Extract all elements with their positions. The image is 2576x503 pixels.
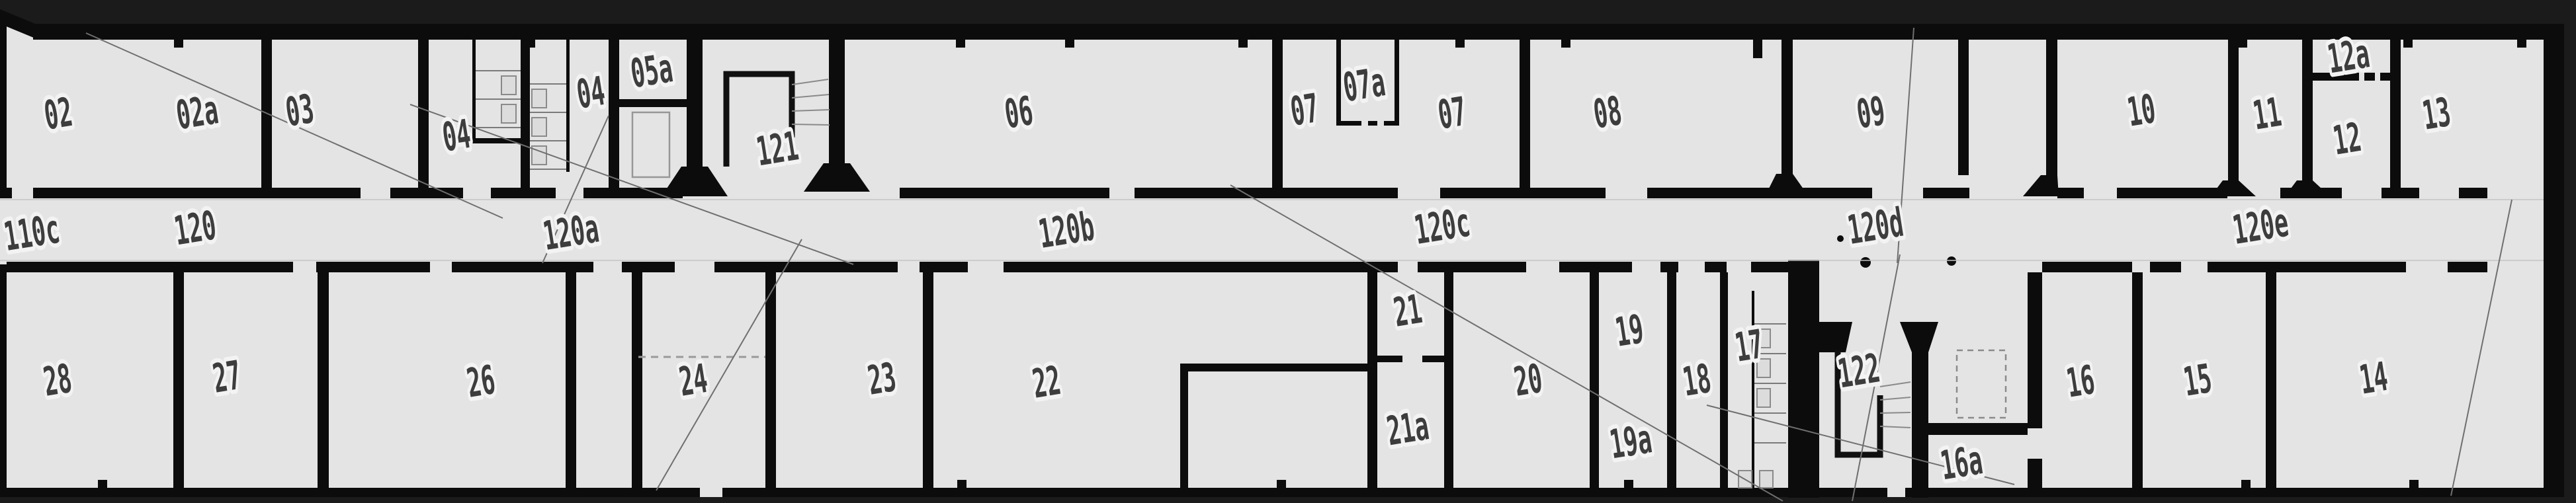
wall-21-20 [1444, 272, 1453, 488]
corridor-label-120a-20: 120a [540, 204, 602, 259]
room-label-21a-32: 21a [1383, 402, 1432, 455]
column [1837, 235, 1844, 242]
wall-07-08 [1520, 24, 1530, 188]
wall-26-25 [566, 272, 576, 488]
column [1860, 257, 1871, 268]
wall-07a-right [1395, 40, 1399, 126]
corridor-label-120d-23: 120d [1844, 198, 1907, 253]
wall-09-alcove [1958, 24, 1969, 175]
room-label-02a-1: 02a [173, 86, 221, 139]
stairwell-label-121-6: 121 [753, 122, 801, 175]
room-label-16a-39: 16a [1937, 436, 1985, 489]
corridor-label-110c-18: 110c [1, 205, 63, 260]
wall-08-09 [1782, 24, 1793, 174]
wall-11-12 [2302, 24, 2313, 180]
wall-below-05a [609, 99, 688, 107]
wall-17-122 [1788, 260, 1819, 498]
wall-24-23 [765, 272, 776, 488]
wall-27-26 [318, 272, 329, 488]
wall-121-06 [829, 24, 845, 163]
wall-10-11 [2228, 24, 2239, 180]
exterior-wall-right [2544, 24, 2564, 497]
wall-20-19 [1590, 272, 1599, 488]
corridor-label-120e-24: 120e [2229, 198, 2292, 253]
wall-07a-left [1336, 40, 1341, 126]
wall-alcove-10 [2046, 24, 2057, 175]
room-label-05a-5: 05a [627, 44, 675, 97]
column [1947, 256, 1956, 266]
wall-23-22 [923, 272, 933, 488]
wall-22-subroom [1180, 368, 1188, 488]
wall-above-16a [1928, 423, 2028, 435]
wall-lift-16 [2028, 272, 2042, 428]
wall-05a-121 [687, 24, 703, 167]
room-label-07a-9: 07a [1340, 58, 1388, 111]
corridor-label-120c-22: 120c [1411, 198, 1473, 253]
wall-21-21a [1377, 356, 1402, 362]
wall-06-07 [1272, 24, 1283, 188]
stairwell-label-122-38: 122 [1834, 344, 1883, 397]
wall-12-13 [2390, 24, 2401, 188]
corridor-label-120-19: 120 [171, 202, 219, 254]
exterior-wall-bottom [0, 488, 700, 497]
wall-19-18 [1667, 272, 1676, 488]
wall-18-17 [1720, 272, 1728, 488]
corridor-label-120b-21: 120b [1035, 202, 1097, 257]
floor-plan-svg: 0202a03040405a121060707a070809101112a121… [0, 0, 2576, 503]
room-label-12a-15: 12a [2324, 30, 2372, 83]
room-label-19a-35: 19a [1606, 415, 1654, 468]
wall-25-24 [632, 272, 642, 488]
exterior-wall-top [33, 24, 2564, 40]
wall-22-21 [1367, 272, 1377, 488]
wall-28-27 [173, 272, 184, 488]
wall-03-04 [418, 40, 429, 188]
wall-15-14 [2266, 272, 2276, 488]
exterior-wall-left [0, 24, 7, 198]
floor-plan: 0202a03040405a121060707a070809101112a121… [0, 0, 2576, 503]
wall-122-lift [1912, 348, 1928, 498]
wall-16-15 [2132, 272, 2143, 488]
